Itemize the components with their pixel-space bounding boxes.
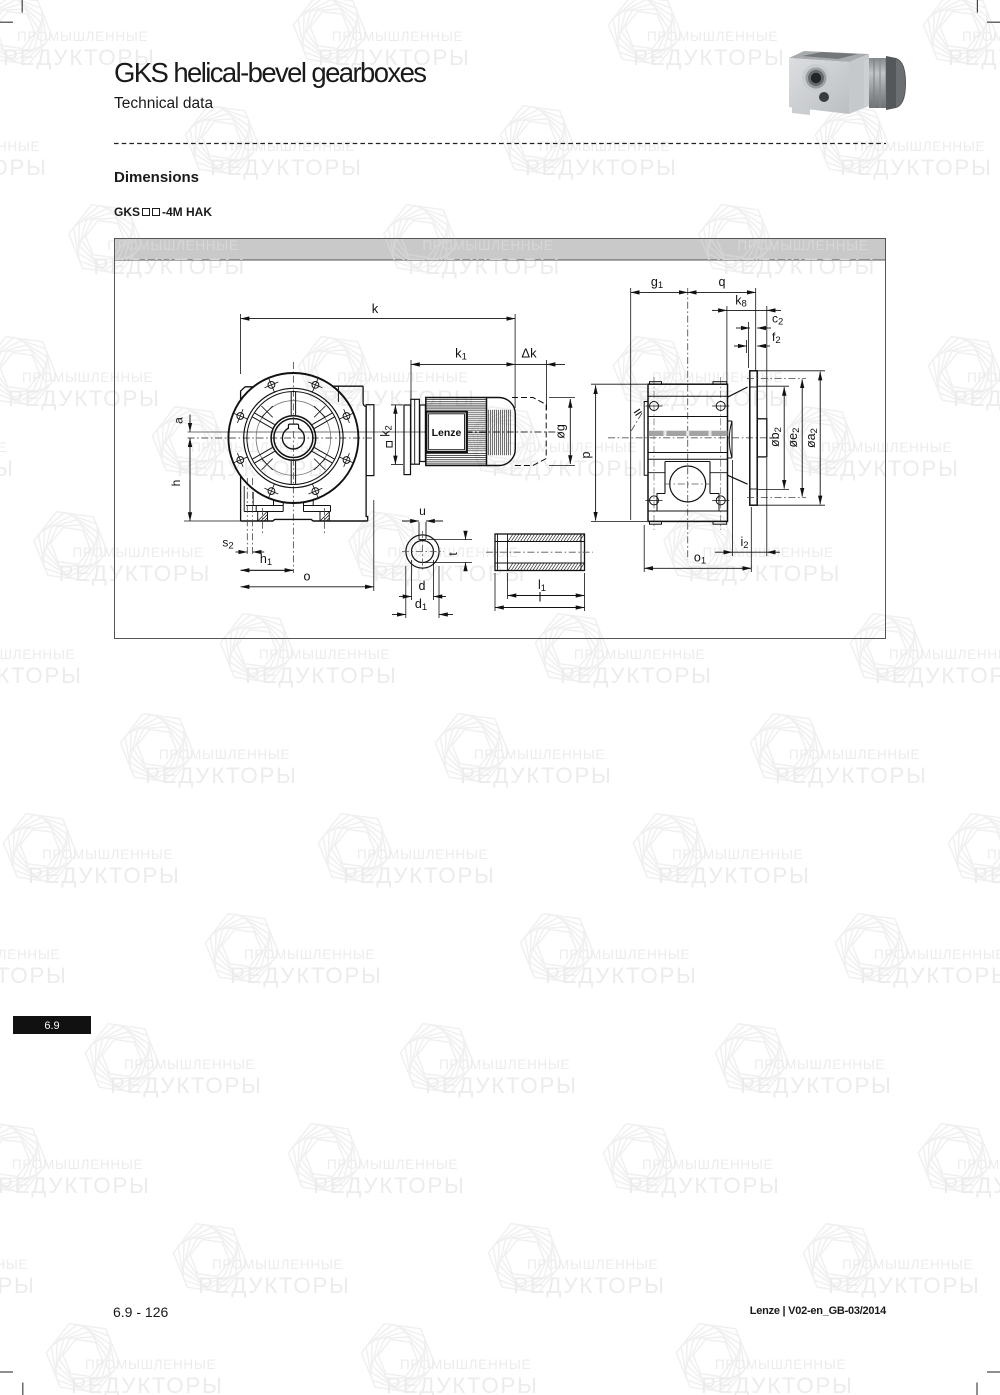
svg-text:ПРОМЫШЛЕННЫЕ: ПРОМЫШЛЕННЫЕ — [114, 238, 239, 253]
svg-text:øa2: øa2 — [804, 428, 820, 448]
svg-text:g1: g1 — [651, 275, 663, 291]
svg-text:s2: s2 — [222, 536, 233, 552]
svg-text:d1: d1 — [415, 597, 427, 613]
svg-text:k: k — [372, 301, 379, 316]
svg-text:k2: k2 — [379, 425, 395, 437]
svg-text:k1: k1 — [455, 346, 467, 363]
svg-text:РЕДУКТОРЫ: РЕДУКТОРЫ — [114, 254, 246, 279]
svg-text:o1: o1 — [694, 551, 706, 567]
svg-text:k8: k8 — [735, 294, 747, 310]
svg-text:h1: h1 — [260, 552, 272, 568]
svg-text:p: p — [579, 451, 593, 458]
svg-text:Δk: Δk — [521, 346, 537, 361]
svg-text:u: u — [419, 504, 426, 518]
svg-text:l: l — [539, 591, 542, 605]
svg-text:øb2: øb2 — [768, 427, 784, 447]
svg-text:o: o — [304, 570, 311, 584]
svg-text:i2: i2 — [740, 535, 748, 551]
svg-text:РЕДУКТОРЫ: РЕДУКТОРЫ — [723, 254, 875, 279]
svg-text:øe2: øe2 — [786, 428, 802, 448]
svg-text:Lenze: Lenze — [432, 427, 462, 439]
svg-text:c2: c2 — [772, 312, 783, 328]
svg-text:øg: øg — [554, 424, 568, 439]
svg-text:q: q — [719, 275, 726, 289]
svg-text:t: t — [446, 552, 460, 556]
svg-text:a: a — [172, 417, 186, 424]
svg-text:h: h — [169, 480, 183, 487]
svg-text:d: d — [419, 579, 426, 593]
svg-text:РЕДУКТОРЫ: РЕДУКТОРЫ — [408, 254, 560, 279]
svg-text:f2: f2 — [772, 330, 781, 346]
